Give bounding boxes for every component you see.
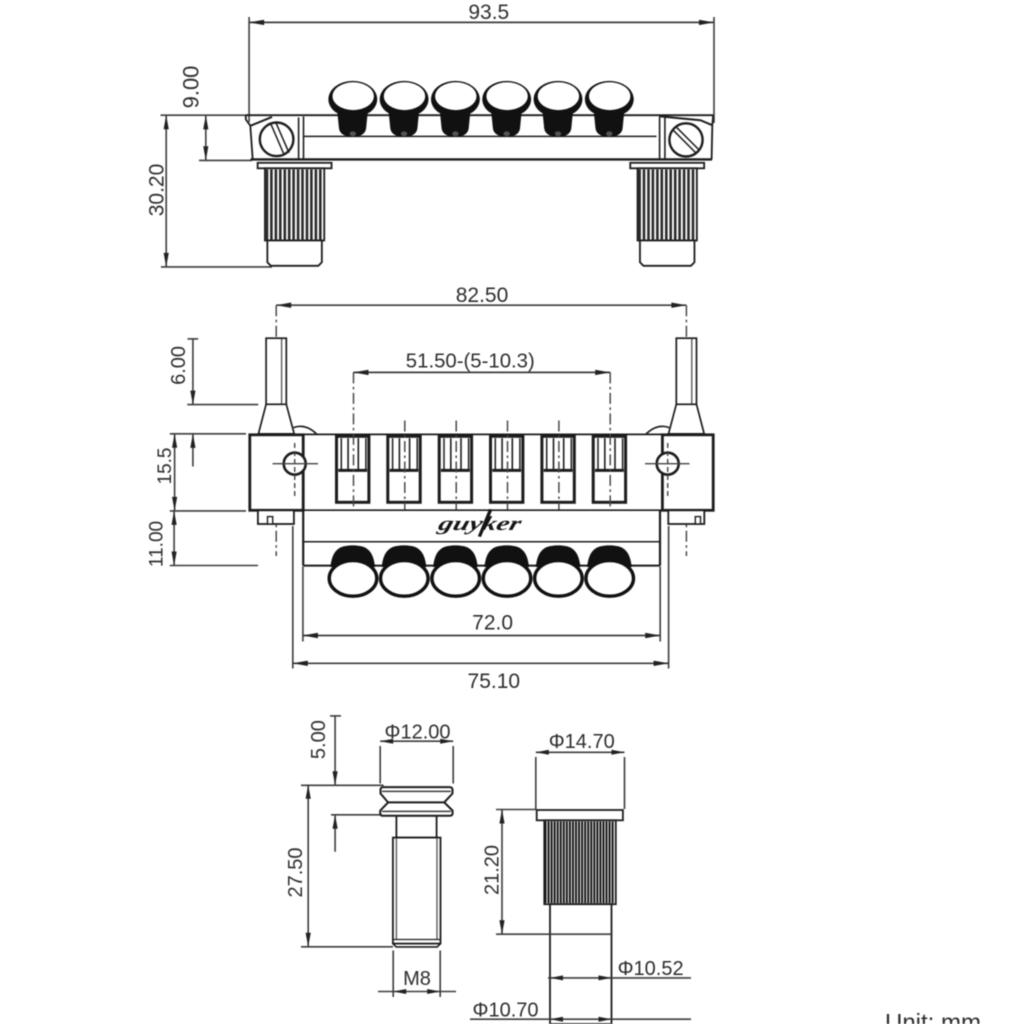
svg-text:Φ14.70: Φ14.70 (549, 731, 615, 753)
svg-text:Φ10.52: Φ10.52 (618, 958, 684, 980)
svg-text:27.50: 27.50 (285, 847, 307, 897)
svg-text:Φ10.70: Φ10.70 (472, 999, 538, 1021)
svg-text:Unit: mm: Unit: mm (885, 1010, 981, 1024)
svg-text:21.20: 21.20 (482, 845, 504, 895)
svg-text:51.50-(5-10.3): 51.50-(5-10.3) (406, 350, 535, 372)
svg-text:5.00: 5.00 (308, 720, 330, 759)
svg-text:M8: M8 (403, 968, 431, 990)
svg-text:93.5: 93.5 (468, 1, 509, 24)
svg-text:75.10: 75.10 (468, 670, 521, 693)
svg-text:11.00: 11.00 (146, 521, 167, 567)
svg-text:6.00: 6.00 (168, 346, 190, 385)
svg-text:30.20: 30.20 (146, 164, 169, 217)
svg-text:82.50: 82.50 (456, 284, 509, 307)
svg-text:15.5: 15.5 (155, 448, 176, 485)
svg-text:72.0: 72.0 (472, 612, 513, 635)
svg-text:9.00: 9.00 (178, 66, 203, 109)
svg-text:Φ12.00: Φ12.00 (384, 721, 450, 743)
